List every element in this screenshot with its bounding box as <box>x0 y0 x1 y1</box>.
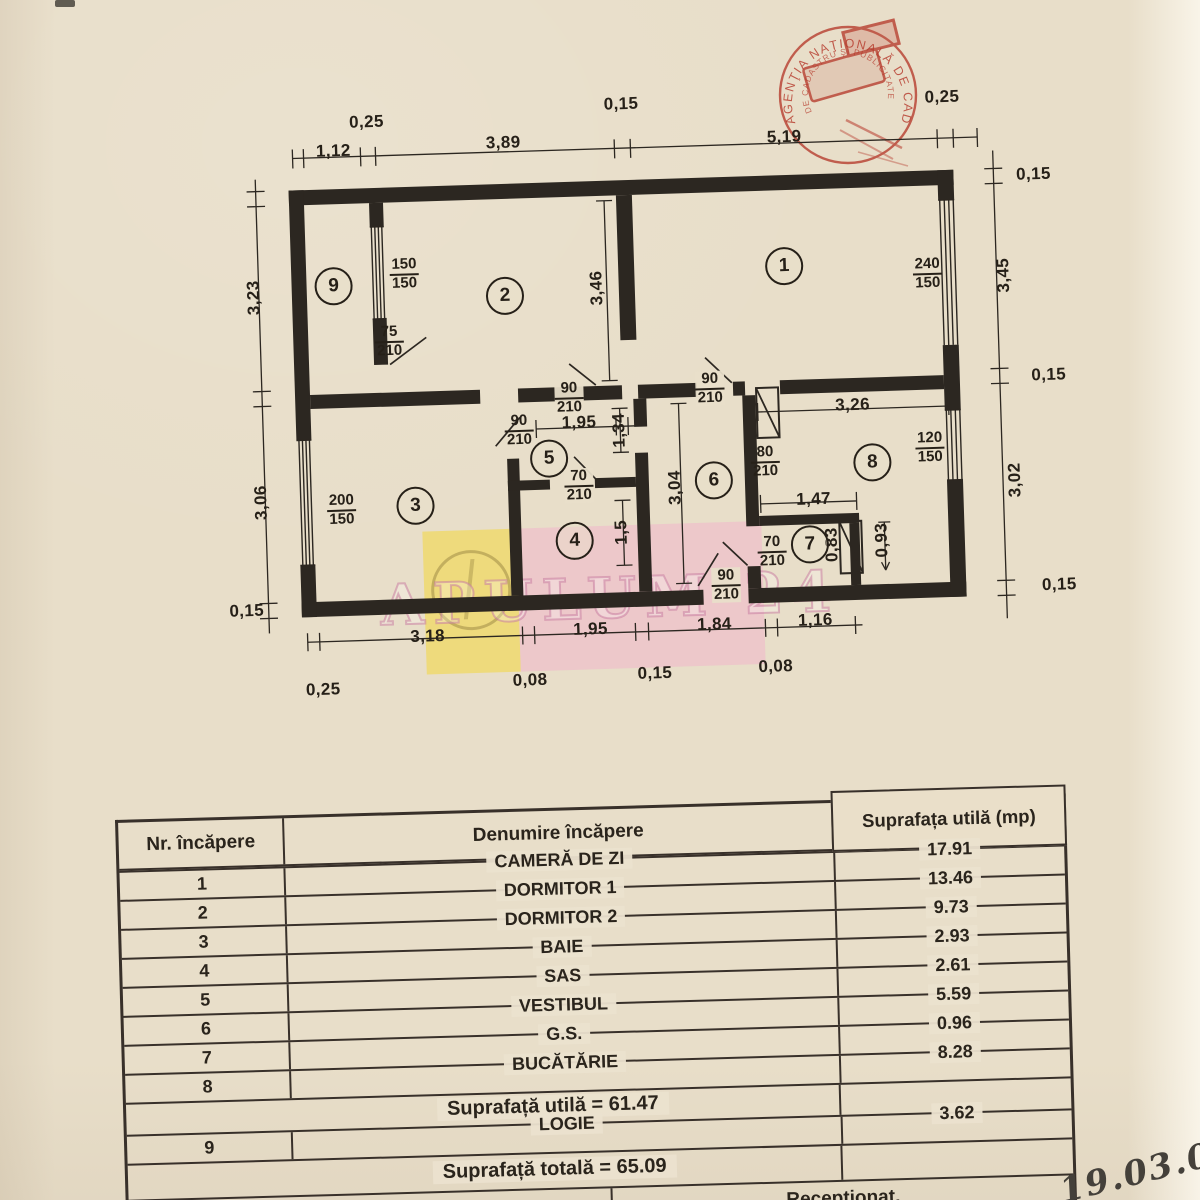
floor-plan-drawing <box>0 0 1200 780</box>
scanned-floor-plan-sheet: AGENŢIA NAŢIONALĂ DE CADAST DE CADASTRU … <box>0 0 1200 1200</box>
door-tag-80-210: 80210 <box>750 444 780 480</box>
dim-304: 3,04 <box>665 470 686 505</box>
row-nr: 1 <box>119 868 286 900</box>
window-tag-150-150: 150150 <box>389 256 419 292</box>
window-tag-120-150: 120150 <box>915 430 945 466</box>
dim-15: 1,5 <box>611 520 632 545</box>
row-nr: 4 <box>122 955 289 987</box>
total-empty-cell <box>841 1139 1073 1179</box>
dim-346: 3,46 <box>586 270 607 305</box>
row-nr: 6 <box>124 1013 291 1045</box>
row-nr: 3 <box>121 926 288 958</box>
dim-left-1: 3,23 <box>243 280 264 315</box>
doors <box>389 324 863 596</box>
dim-bottom-1: 3,18 <box>410 626 445 647</box>
dim-bottom-small-2: 0,08 <box>512 670 547 691</box>
row-nr: 2 <box>120 897 287 929</box>
dim-326: 3,26 <box>835 394 870 415</box>
dim-left-2: 3,06 <box>251 485 272 520</box>
room-areas-table: Nr. încăpere Denumire încăpere Suprafața… <box>115 793 1079 1200</box>
row-nr: 7 <box>124 1042 291 1074</box>
dim-top-small-1: 0,25 <box>349 112 384 133</box>
dim-top-1: 1,12 <box>316 141 351 162</box>
row-nr: 8 <box>125 1071 292 1103</box>
dim-bottom-small-4: 0,08 <box>758 656 793 677</box>
receptionat-label: Recepționat, <box>786 1186 901 1200</box>
door-tag-90-210-b: 90210 <box>504 413 534 449</box>
dim-top-small-3: 0,25 <box>924 87 959 108</box>
dim-right-5: 0,15 <box>1042 574 1077 595</box>
door-tag-90-210-c: 90210 <box>695 371 725 407</box>
dim-right-4: 3,02 <box>1004 462 1025 497</box>
dim-bottom-small-1: 0,25 <box>306 679 341 700</box>
dim-right-2: 3,45 <box>993 258 1014 293</box>
walls <box>289 170 967 618</box>
dim-bottom-2: 1,95 <box>573 619 608 640</box>
door-tag-70-210-b: 70210 <box>757 534 787 570</box>
header-nr: Nr. încăpere <box>118 818 285 869</box>
dim-top-small-2: 0,15 <box>603 94 638 115</box>
dim-bottom-4: 1,16 <box>798 610 833 631</box>
window-tag-200-150: 200150 <box>327 492 357 528</box>
row-nr: 5 <box>123 984 290 1016</box>
door-tag-90-210-d: 90210 <box>711 567 741 603</box>
dim-top-3: 5,19 <box>766 126 801 147</box>
dim-134: 1,34 <box>609 413 630 448</box>
dim-right-3: 0,15 <box>1031 364 1066 385</box>
dim-right-1: 0,15 <box>1016 164 1051 185</box>
dim-093: 0,93 <box>871 523 892 558</box>
dim-bottom-3: 1,84 <box>697 614 732 635</box>
door-tag-75-210: 75210 <box>374 324 404 360</box>
floor-plan: APULUM 24 <box>0 0 1200 780</box>
door-tag-90-210-a: 90210 <box>554 380 584 416</box>
door-tag-70-210-a: 70210 <box>564 468 594 504</box>
dim-bottom-small-3: 0,15 <box>637 663 672 684</box>
window-tag-240-150: 240150 <box>912 256 942 292</box>
dim-top-2: 3,89 <box>486 132 521 153</box>
row-nr: 9 <box>127 1132 294 1164</box>
dim-left-3: 0,15 <box>229 601 264 622</box>
handwritten-date: 19.03.07 <box>1056 1129 1200 1200</box>
dim-147: 1,47 <box>796 489 831 510</box>
